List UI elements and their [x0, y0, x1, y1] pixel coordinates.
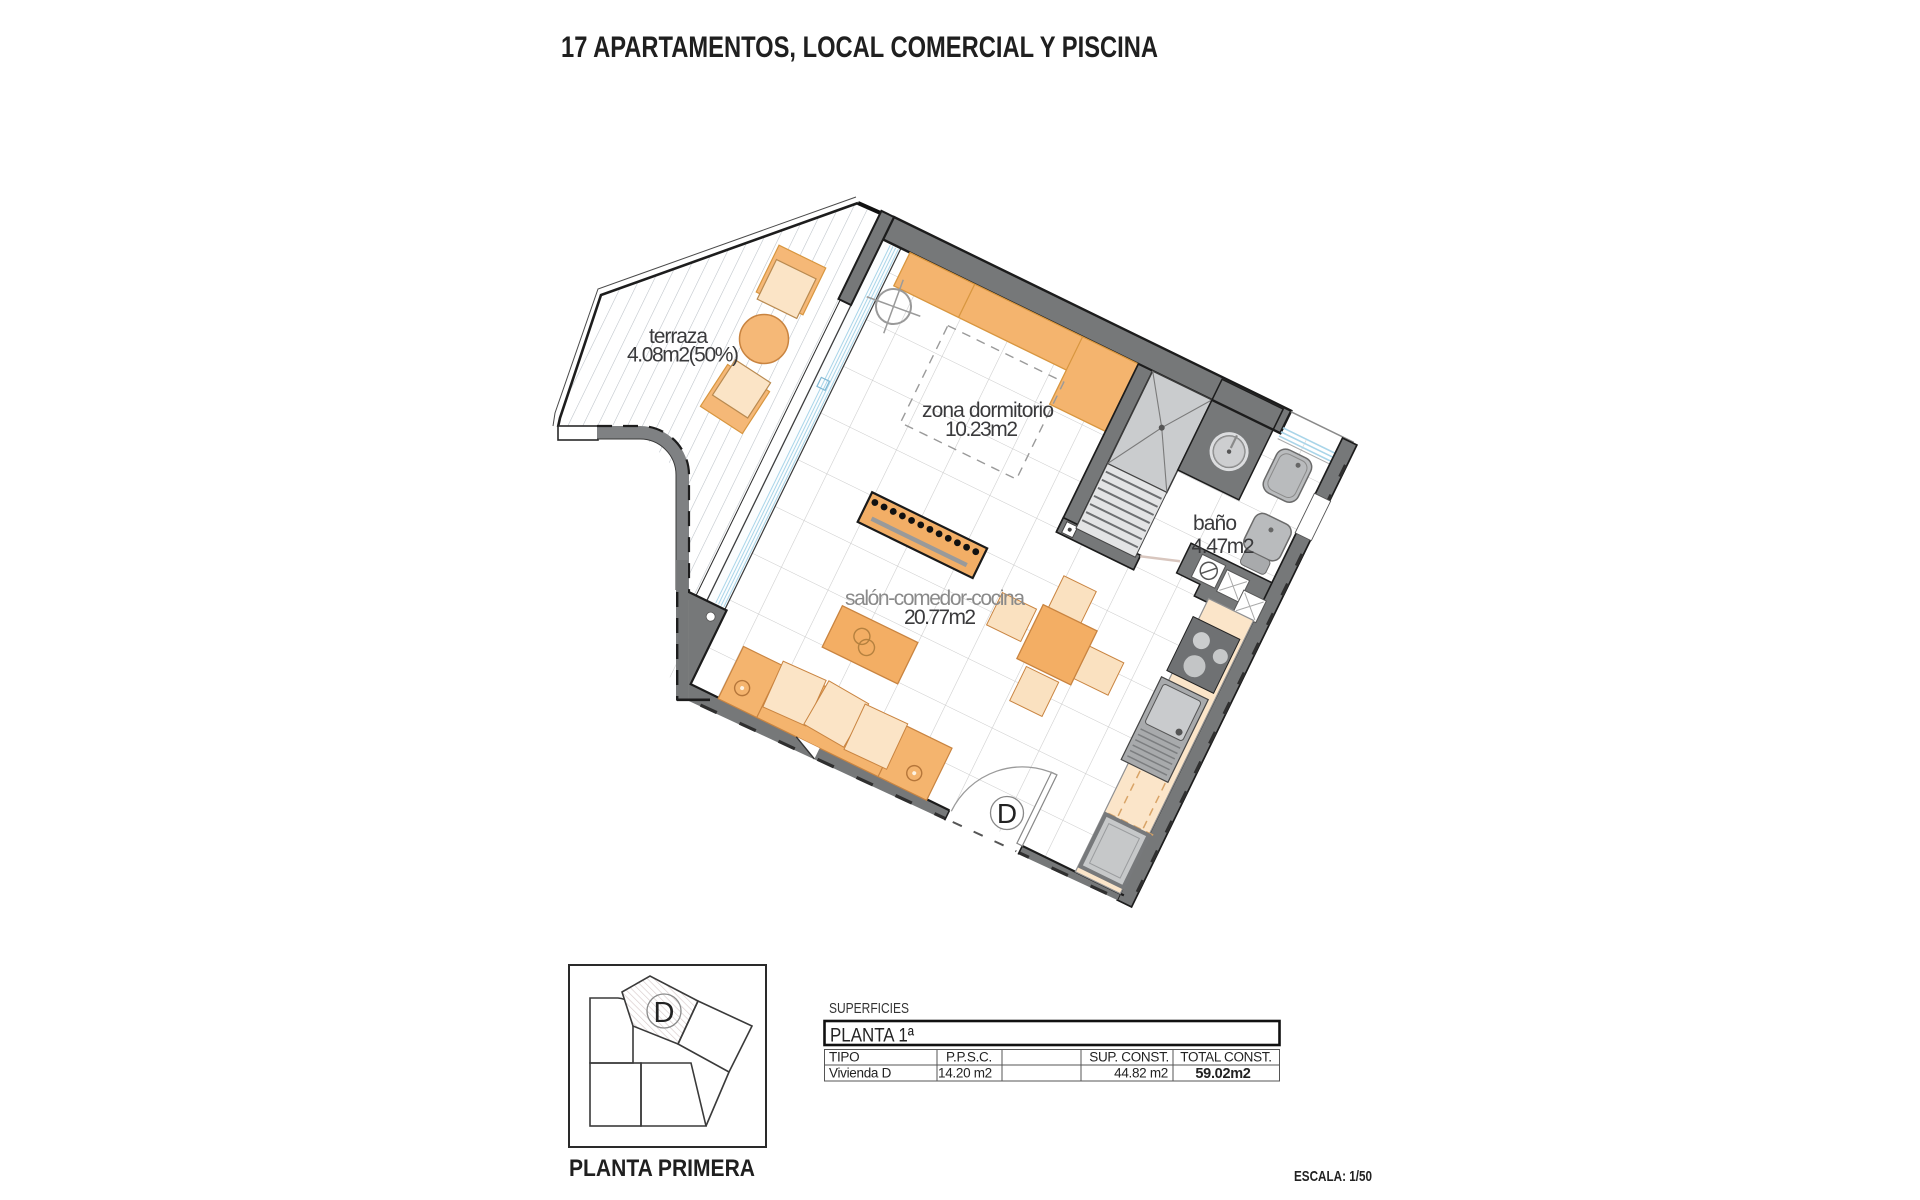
svg-text:4.08m2(50%): 4.08m2(50%)	[627, 344, 739, 367]
svg-text:Vivienda D: Vivienda D	[829, 1066, 892, 1081]
svg-text:D: D	[997, 798, 1017, 829]
svg-text:4.47m2: 4.47m2	[1192, 535, 1255, 558]
svg-text:D: D	[654, 997, 675, 1029]
svg-text:ESCALA: 1/50: ESCALA: 1/50	[1294, 1168, 1372, 1185]
svg-text:59.02m2: 59.02m2	[1195, 1066, 1250, 1082]
svg-text:TIPO: TIPO	[829, 1050, 859, 1065]
svg-text:P.P.S.C.: P.P.S.C.	[946, 1050, 992, 1065]
svg-text:PLANTA 1ª: PLANTA 1ª	[830, 1026, 915, 1047]
svg-text:TOTAL CONST.: TOTAL CONST.	[1180, 1050, 1271, 1065]
svg-text:PLANTA PRIMERA: PLANTA PRIMERA	[569, 1155, 755, 1182]
svg-text:20.77m2: 20.77m2	[904, 606, 976, 629]
svg-text:10.23m2: 10.23m2	[945, 418, 1018, 441]
svg-text:SUPERFICIES: SUPERFICIES	[829, 1001, 909, 1017]
svg-text:14.20 m2: 14.20 m2	[938, 1066, 992, 1081]
svg-text:44.82 m2: 44.82 m2	[1114, 1066, 1168, 1081]
svg-text:17 APARTAMENTOS, LOCAL COMERCI: 17 APARTAMENTOS, LOCAL COMERCIAL Y PISCI…	[561, 31, 1158, 64]
svg-text:baño: baño	[1193, 512, 1237, 535]
svg-text:SUP. CONST.: SUP. CONST.	[1089, 1050, 1169, 1065]
